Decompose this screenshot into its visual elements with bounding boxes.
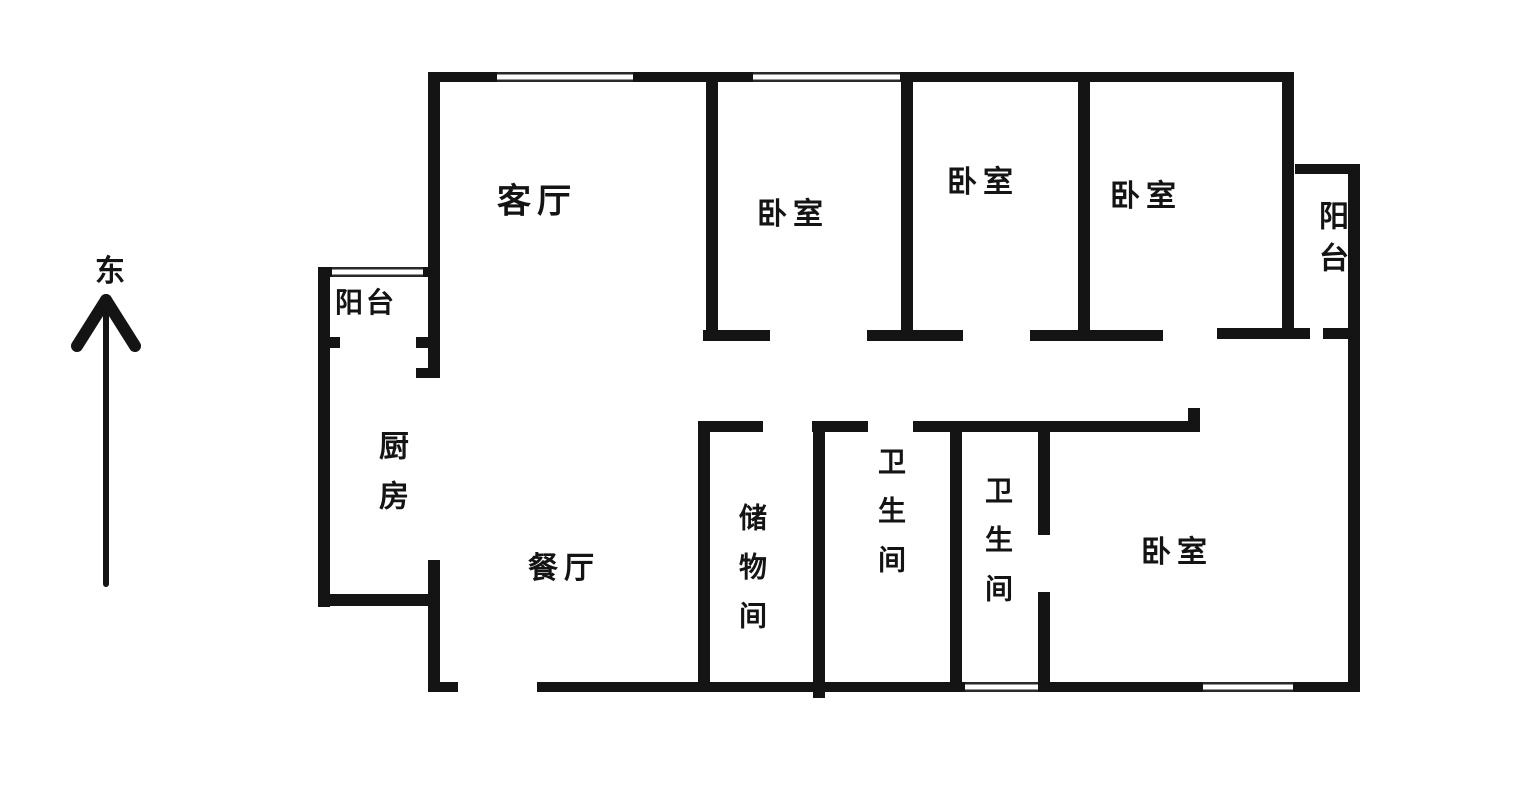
wall [416,337,428,348]
floor-plan: 东 客厅 阳台 卧室 卧室 卧室 阳台 厨房 餐厅 储物间 卫生间 卫生间 卧室 [0,0,1521,809]
wall [867,330,963,341]
wall [318,594,440,606]
wall [330,337,340,348]
window [497,72,633,82]
wall [1030,330,1163,341]
wall [440,682,458,692]
wall [1038,592,1050,692]
room-label-bedroom-1: 卧室 [757,189,829,233]
wall [423,267,440,277]
wall [813,421,825,698]
floor-plan-drawing [0,0,1521,809]
compass-label: 东 [95,246,125,290]
wall [1293,682,1360,692]
window [332,267,423,277]
windows-layer [332,72,1293,692]
compass-arrow [77,300,135,584]
room-label-storage-room: 储物间 [731,503,771,650]
wall [901,72,913,341]
room-label-bedroom-2: 卧室 [947,157,1019,201]
room-label-bathroom-1: 卫生间 [870,447,910,594]
wall [1217,328,1310,339]
wall [633,72,753,82]
wall [1038,682,1203,692]
wall [1282,72,1294,334]
wall [703,330,770,341]
wall [950,421,962,692]
room-label-bedroom-3: 卧室 [1110,171,1182,215]
wall [1188,408,1200,421]
room-label-bedroom-4: 卧室 [1141,527,1213,571]
room-label-balcony-right: 阳台 [1308,200,1352,284]
walls-layer [318,72,1360,698]
wall [1038,421,1050,535]
room-label-living-room: 客厅 [497,174,577,223]
window [753,72,900,82]
wall [900,72,1294,82]
wall [706,72,718,341]
wall [318,267,330,607]
wall [1078,72,1090,341]
wall [428,72,440,378]
wall [428,560,440,692]
room-label-dining-room: 餐厅 [528,543,600,587]
wall [537,682,965,692]
wall [698,421,710,692]
window [1203,682,1293,692]
room-label-balcony-left: 阳台 [335,281,397,321]
window [965,682,1038,692]
room-label-bathroom-2: 卫生间 [977,476,1017,623]
wall [416,368,428,378]
room-label-kitchen: 厨房 [368,430,412,530]
